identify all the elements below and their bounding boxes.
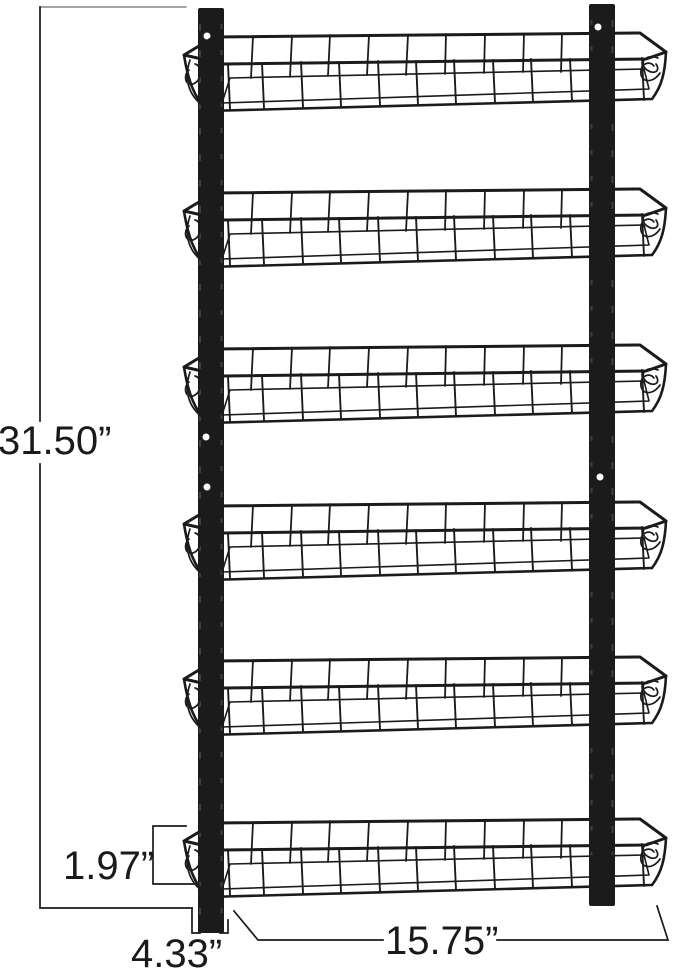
rail-basket-mount: [591, 856, 615, 904]
basket-width-label: 15.75”: [385, 921, 498, 961]
width-dimension-line-left: [234, 911, 383, 940]
product-dimension-diagram: 31.50” 1.97” 4.33” 15.75”: [0, 0, 679, 972]
side-depth-label: 4.33”: [131, 934, 222, 972]
dimension-lines: [40, 7, 668, 940]
rail-basket-mount: [591, 694, 615, 742]
rail-basket-mount: [591, 382, 615, 430]
mounting-hole: [595, 24, 602, 31]
basket-height-label: 1.97”: [63, 846, 154, 886]
rail-basket-mount: [591, 70, 615, 118]
rail-basket-mount: [591, 226, 615, 274]
mounting-rails: [198, 4, 615, 933]
left-rail: [198, 8, 224, 933]
rail-basket-mount: [591, 539, 615, 587]
overall-height-label: 31.50”: [0, 421, 111, 461]
mounting-hole: [597, 474, 604, 481]
right-rail: [589, 4, 615, 906]
width-dimension-line-right: [497, 906, 668, 940]
mounting-hole: [203, 434, 210, 441]
mounting-hole: [204, 484, 211, 491]
rack-illustration: [0, 0, 679, 972]
